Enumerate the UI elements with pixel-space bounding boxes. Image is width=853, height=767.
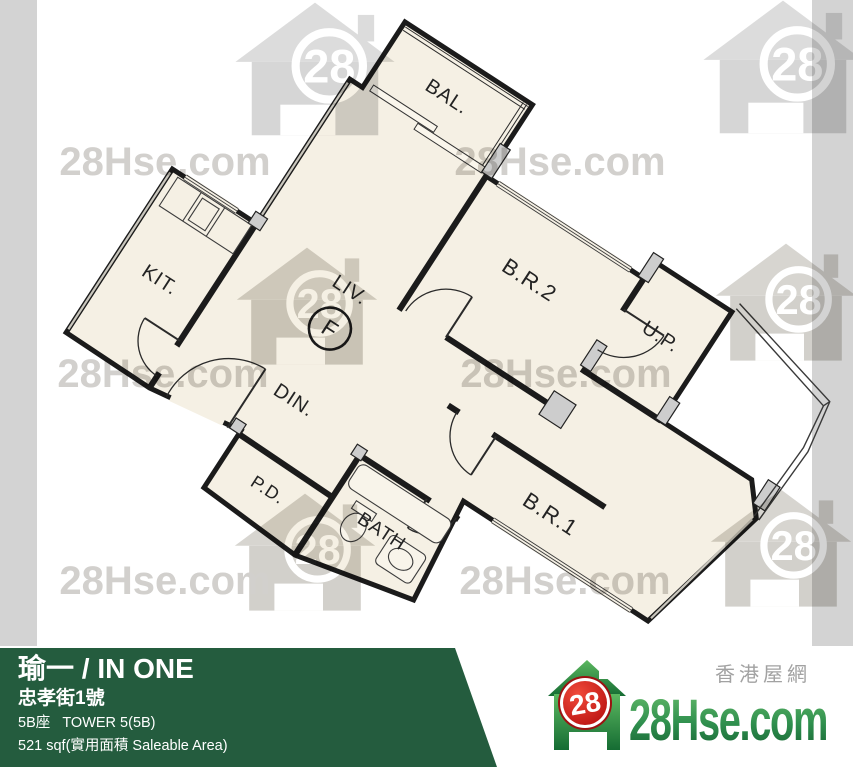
svg-text:28Hse.com: 28Hse.com bbox=[460, 352, 671, 396]
svg-text:28Hse.com: 28Hse.com bbox=[59, 140, 270, 184]
svg-text:28Hse.com: 28Hse.com bbox=[454, 140, 665, 184]
logo-site-name-chinese: 香港屋網 bbox=[715, 658, 811, 687]
property-title: 瑜一 / IN ONE bbox=[18, 652, 520, 686]
svg-text:28: 28 bbox=[776, 277, 822, 323]
svg-text:28Hse.com: 28Hse.com bbox=[59, 559, 270, 603]
property-area: 521 sqf(實用面積 Saleable Area) bbox=[18, 735, 520, 757]
svg-text:28: 28 bbox=[295, 527, 341, 573]
property-tower: 5B座 TOWER 5(5B) bbox=[18, 712, 520, 735]
svg-text:28Hse.com: 28Hse.com bbox=[57, 352, 268, 396]
svg-text:28: 28 bbox=[303, 40, 355, 92]
watermark-house-icon: 28 bbox=[235, 3, 394, 136]
watermark-house-icon: 28 bbox=[703, 1, 853, 134]
svg-text:28: 28 bbox=[771, 38, 823, 90]
site-logo: 28 28Hse.com 香港屋網 bbox=[543, 650, 843, 762]
logo-house-icon: 28 bbox=[548, 660, 626, 750]
property-info-banner: 瑜一 / IN ONE 忠孝街1號 5B座 TOWER 5(5B) 521 sq… bbox=[0, 648, 520, 767]
svg-text:28: 28 bbox=[297, 281, 343, 327]
svg-text:28: 28 bbox=[771, 523, 817, 569]
watermark-house-icon: 28 bbox=[716, 244, 853, 361]
svg-text:28Hse.com: 28Hse.com bbox=[459, 559, 670, 603]
floorplan-page: F BAL. LIV. DIN. KIT. B.R.2 U.P. B.R.1 B… bbox=[0, 0, 853, 767]
logo-wordmark: 28Hse.com bbox=[629, 688, 827, 753]
property-address: 忠孝街1號 bbox=[18, 686, 520, 712]
logo-badge-number: 28 bbox=[567, 686, 603, 722]
